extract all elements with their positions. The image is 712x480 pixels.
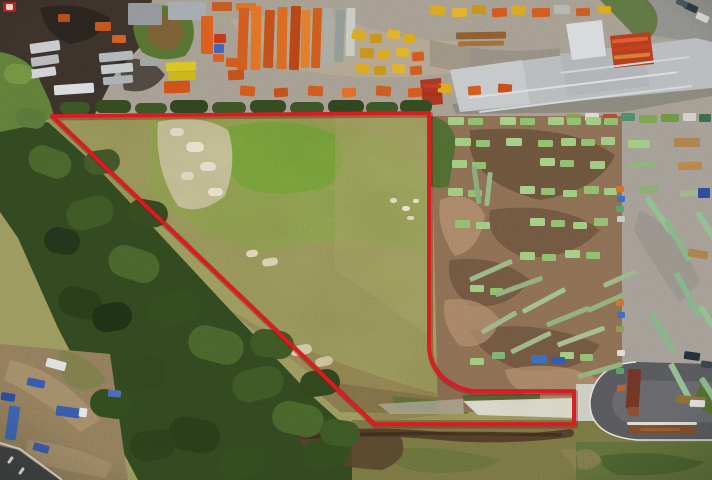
aerial-photo-svg: Aerial drone photograph of a vacant gras… — [0, 0, 712, 480]
aerial-photo: Aerial drone photograph of a vacant gras… — [0, 0, 712, 480]
vignette-overlay — [0, 0, 712, 480]
